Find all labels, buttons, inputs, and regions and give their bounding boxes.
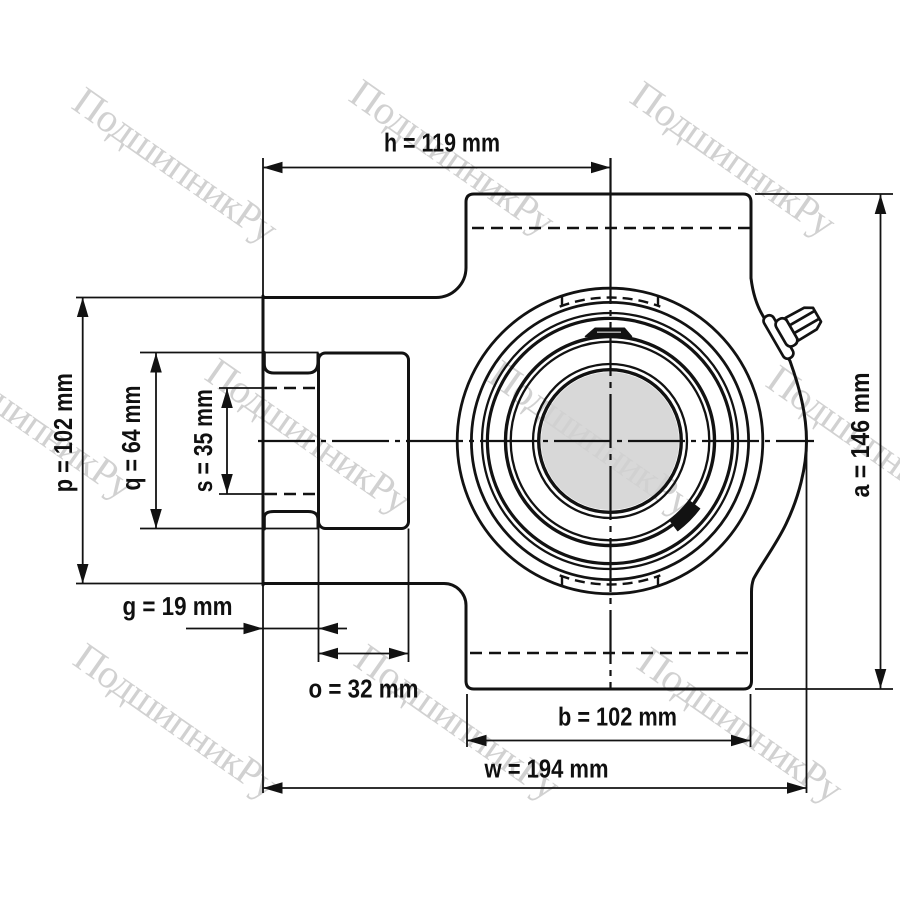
svg-text:a = 146 mm: a = 146 mm bbox=[845, 373, 875, 498]
svg-text:b = 102 mm: b = 102 mm bbox=[558, 702, 677, 732]
svg-text:h = 119 mm: h = 119 mm bbox=[384, 128, 500, 158]
svg-text:g = 19 mm: g = 19 mm bbox=[123, 591, 233, 621]
svg-text:o = 32 mm: o = 32 mm bbox=[309, 674, 419, 704]
svg-text:s = 35 mm: s = 35 mm bbox=[188, 389, 218, 492]
svg-text:q = 64 mm: q = 64 mm bbox=[116, 386, 146, 491]
svg-text:p = 102 mm: p = 102 mm bbox=[48, 373, 78, 492]
svg-text:w = 194 mm: w = 194 mm bbox=[484, 754, 609, 784]
